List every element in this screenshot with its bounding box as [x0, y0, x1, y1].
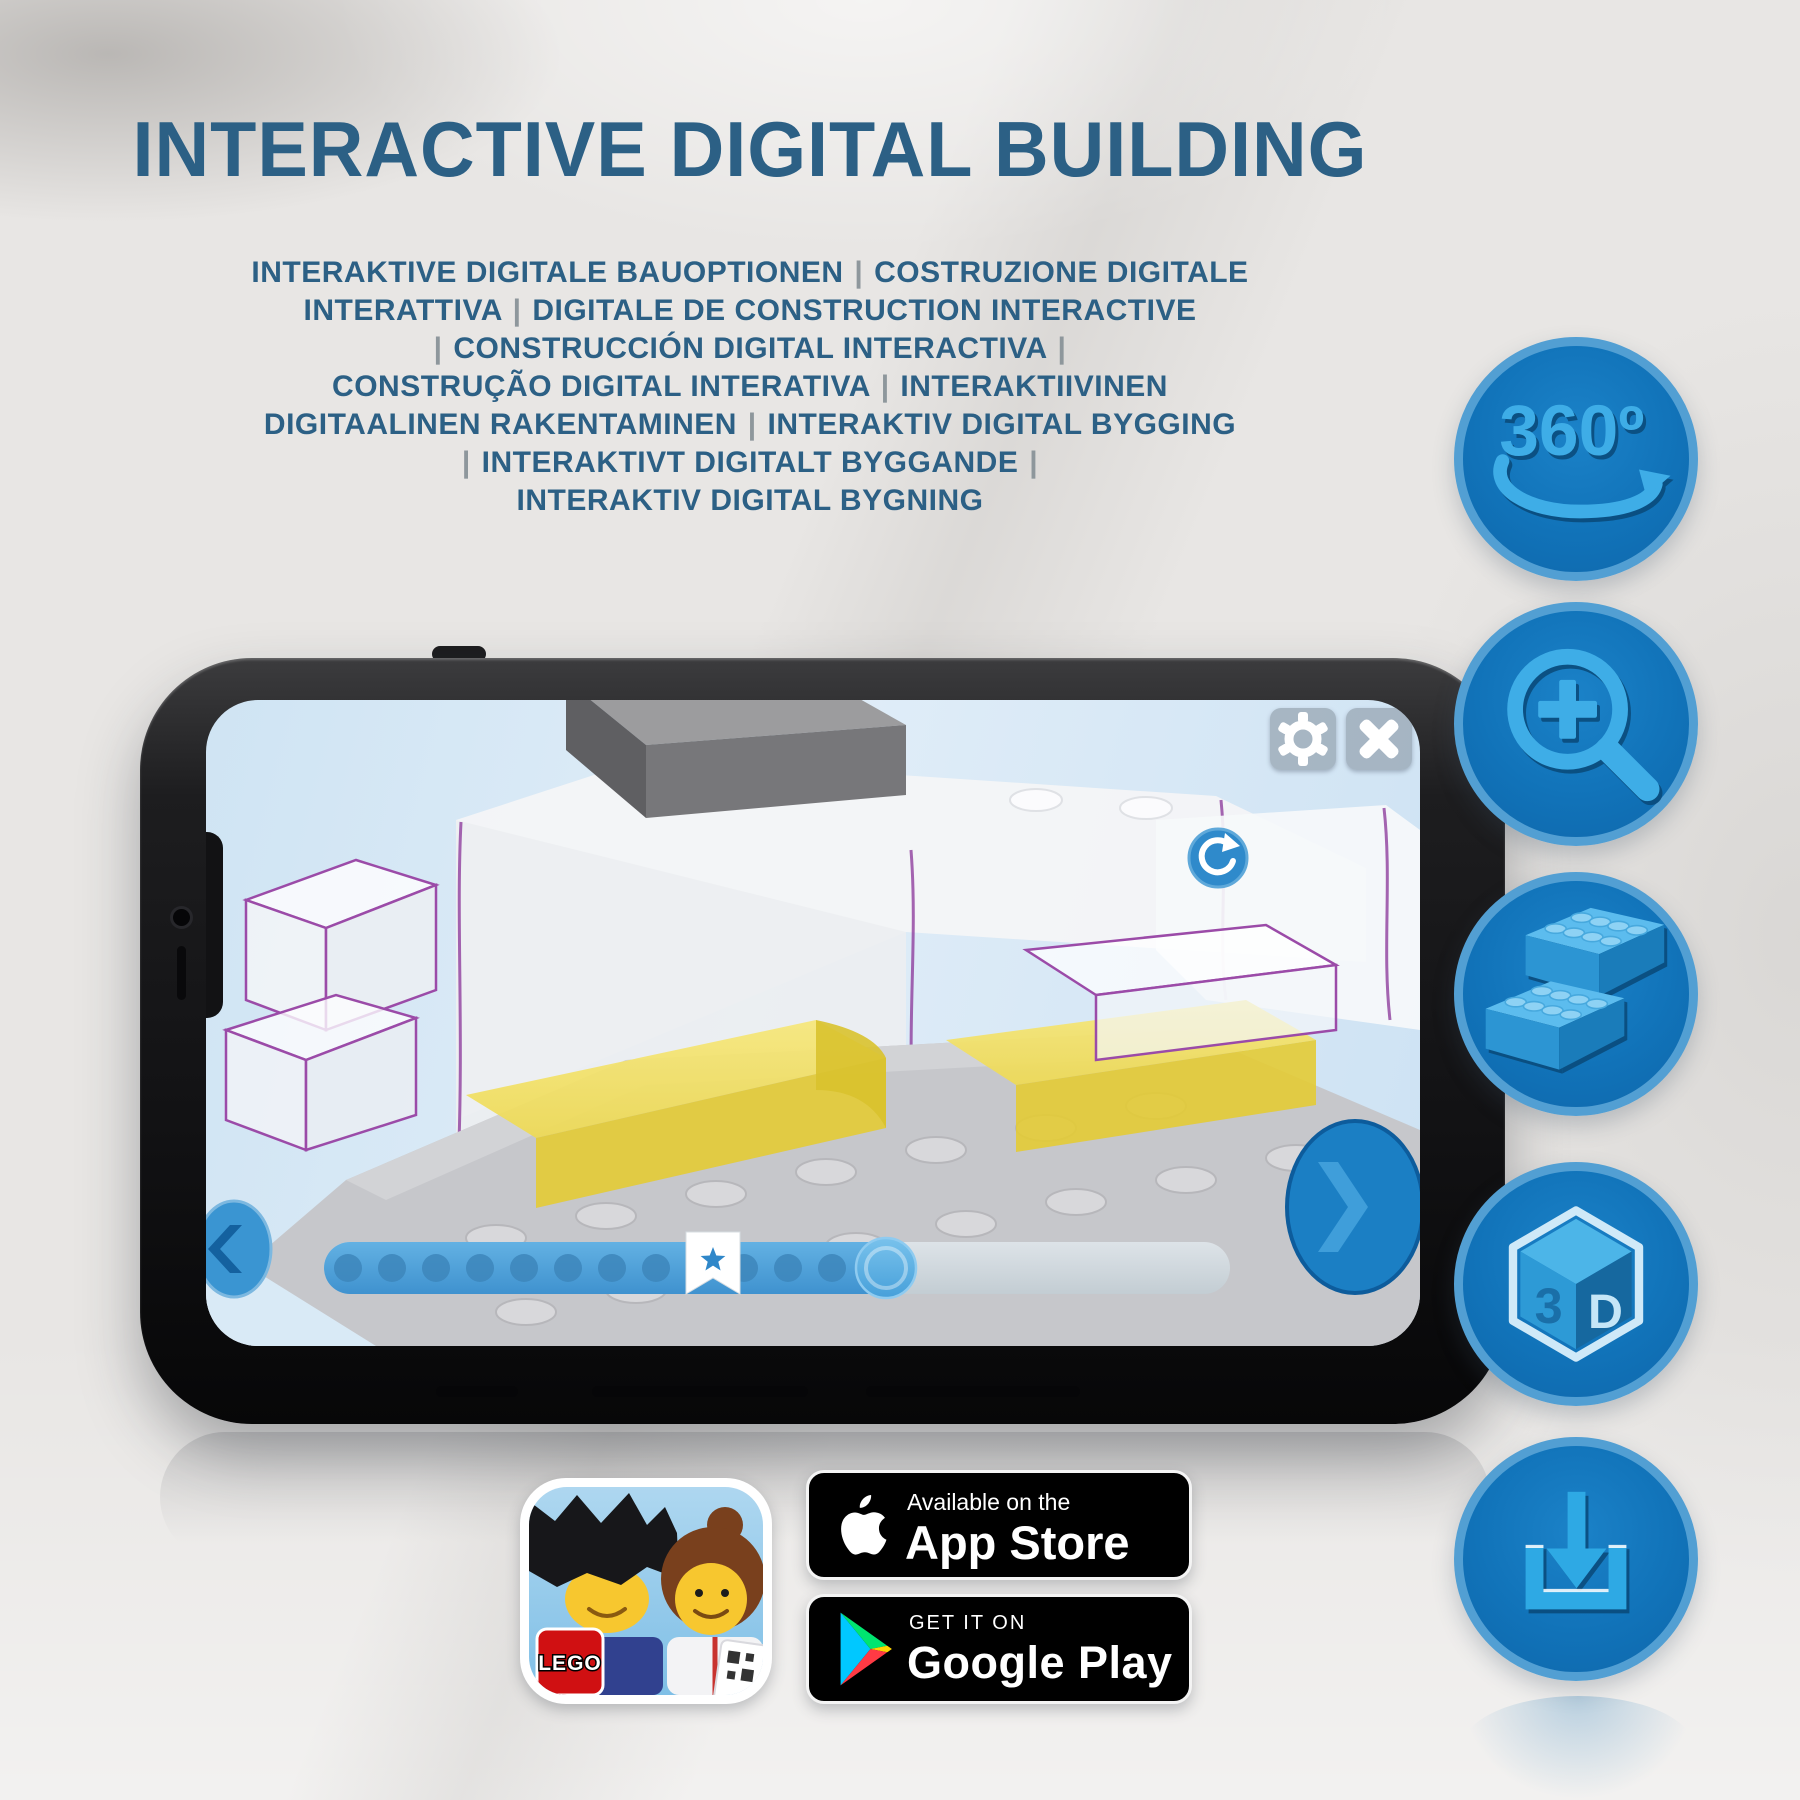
app-store-badge[interactable]: Available on the App Store: [806, 1470, 1192, 1580]
phone-port-slit: [436, 1386, 518, 1397]
3d-cube-icon: 3 D: [1471, 1179, 1681, 1389]
rotate-button[interactable]: [1185, 825, 1251, 896]
feature-zoom: [1454, 602, 1698, 846]
lego-bricks-icon: [1471, 889, 1681, 1099]
google-play-badge[interactable]: GET IT ON Google Play: [806, 1594, 1192, 1704]
close-button[interactable]: [1346, 708, 1412, 770]
subtitle-line: CONSTRUÇÃO DIGITAL INTERATIVA | INTERAKT…: [0, 368, 1500, 406]
phone-earpiece: [177, 946, 186, 1000]
lego-app-icon[interactable]: LEGO: [520, 1478, 772, 1704]
google-play-tagline: GET IT ON: [909, 1612, 1026, 1635]
selected-bricks: [226, 860, 436, 1150]
google-play-icon: [829, 1607, 897, 1691]
360-label: 360º: [1499, 391, 1644, 471]
subtitle-line: INTERATTIVA | DIGITALE DE CONSTRUCTION I…: [0, 292, 1500, 330]
phone-camera: [170, 906, 193, 929]
cube-3-label: 3: [1535, 1277, 1563, 1334]
google-play-name: Google Play: [907, 1637, 1173, 1689]
svg-text:LEGO: LEGO: [538, 1652, 602, 1675]
next-button[interactable]: [1280, 1114, 1420, 1305]
subtitle: INTERAKTIVE DIGITALE BAUOPTIONEN | COSTR…: [0, 254, 1500, 520]
app-store-tagline: Available on the: [907, 1489, 1070, 1516]
feature-360-rotation: 360º: [1454, 337, 1698, 581]
subtitle-line: | CONSTRUCCIÓN DIGITAL INTERACTIVA |: [0, 330, 1500, 368]
subtitle-line: | INTERAKTIVT DIGITALT BYGGANDE |: [0, 444, 1500, 482]
build-progress-bar[interactable]: [324, 1230, 1264, 1331]
phone-notch: [206, 832, 223, 1018]
download-icon: [1471, 1454, 1681, 1664]
phone-speaker-slit: [592, 1386, 808, 1397]
app-store-name: App Store: [905, 1515, 1130, 1570]
qr-card: [713, 1639, 763, 1695]
feature-3d-view: 3 D: [1454, 1162, 1698, 1406]
download-icon-reflection: [1462, 1696, 1694, 1800]
lego-logo: LEGO: [537, 1629, 603, 1695]
phone-screen: [206, 700, 1420, 1346]
feature-download: [1454, 1437, 1698, 1681]
settings-button[interactable]: [1270, 708, 1336, 770]
close-icon: [1346, 708, 1412, 770]
magnifier-plus-icon: [1471, 619, 1681, 829]
phone-speaker-slit: [866, 1386, 1080, 1397]
progress-slider-handle[interactable]: [856, 1238, 916, 1298]
cube-d-label: D: [1588, 1285, 1623, 1339]
rotate-icon: [1185, 825, 1251, 891]
poster: INTERACTIVE DIGITAL BUILDING INTERAKTIVE…: [0, 0, 1800, 1800]
gear-icon: [1270, 708, 1336, 770]
subtitle-line: INTERAKTIV DIGITAL BYGNING: [0, 482, 1500, 520]
subtitle-line: INTERAKTIVE DIGITALE BAUOPTIONEN | COSTR…: [0, 254, 1500, 292]
feature-bricks: [1454, 872, 1698, 1116]
back-button[interactable]: [206, 1196, 280, 1311]
apple-icon: [835, 1495, 889, 1559]
subtitle-line: DIGITAALINEN RAKENTAMINEN | INTERAKTIV D…: [0, 406, 1500, 444]
page-title: INTERACTIVE DIGITAL BUILDING: [23, 104, 1478, 195]
